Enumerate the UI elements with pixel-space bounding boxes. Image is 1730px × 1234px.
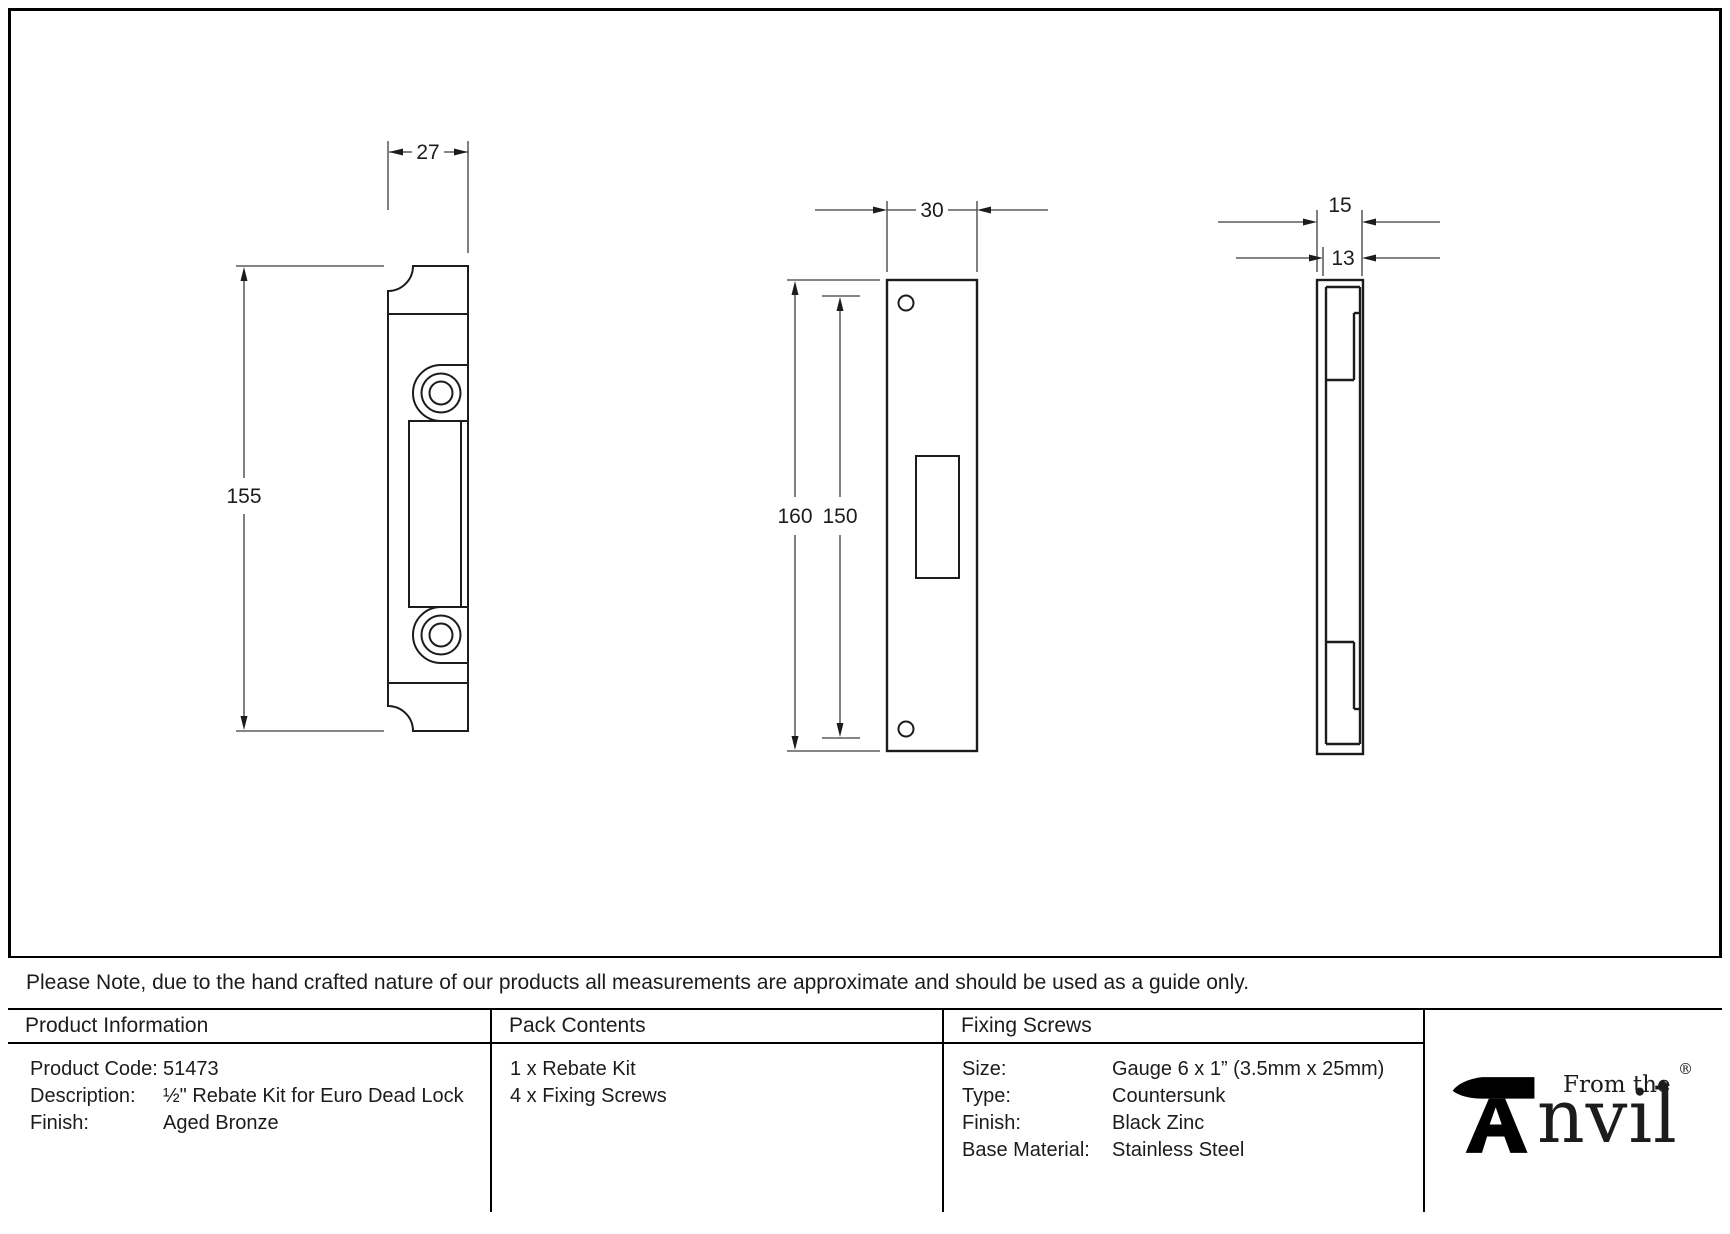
list-item: 4 x Fixing Screws bbox=[510, 1083, 942, 1110]
row-label: Type: bbox=[962, 1083, 1112, 1110]
registered-mark: ® bbox=[1678, 1060, 1693, 1078]
row-value: Aged Bronze bbox=[163, 1110, 279, 1137]
row-label: Description: bbox=[30, 1083, 163, 1110]
from-the-anvil-logo: From the ◆ nvil ® bbox=[1445, 1050, 1707, 1172]
table-row: Description: ½" Rebate Kit for Euro Dead… bbox=[30, 1083, 490, 1110]
technical-drawing: 27 155 30 bbox=[0, 0, 1730, 956]
dim-150-label: 150 bbox=[822, 505, 857, 528]
table-row: Type: Countersunk bbox=[962, 1083, 1423, 1110]
dim-155-label: 155 bbox=[226, 485, 261, 508]
row-label: Product Code: bbox=[30, 1056, 163, 1083]
face-plate-bottom-hole bbox=[899, 722, 914, 737]
dim-15-label: 15 bbox=[1328, 194, 1351, 217]
brand-cell: From the ◆ nvil ® bbox=[1425, 1008, 1722, 1212]
row-value: Gauge 6 x 1” (3.5mm x 25mm) bbox=[1112, 1056, 1384, 1083]
table-row: Base Material: Stainless Steel bbox=[962, 1137, 1423, 1164]
fixing-screws-header: Fixing Screws bbox=[944, 1008, 1425, 1044]
pack-contents-header: Pack Contents bbox=[492, 1008, 944, 1044]
list-item: 1 x Rebate Kit bbox=[510, 1056, 942, 1083]
row-label: Finish: bbox=[30, 1110, 163, 1137]
dim-27-label: 27 bbox=[416, 141, 439, 164]
side-profile-outline bbox=[388, 266, 468, 731]
face-plate-cutout bbox=[916, 456, 959, 578]
row-label: Finish: bbox=[962, 1110, 1112, 1137]
face-plate-top-hole bbox=[899, 296, 914, 311]
table-row: Finish: Aged Bronze bbox=[30, 1110, 490, 1137]
face-plate-outline bbox=[887, 280, 977, 751]
row-label: Size: bbox=[962, 1056, 1112, 1083]
dim-13-label: 13 bbox=[1331, 247, 1354, 270]
row-value: ½" Rebate Kit for Euro Dead Lock bbox=[163, 1083, 464, 1110]
product-information-header: Product Information bbox=[8, 1008, 492, 1044]
dim-30-label: 30 bbox=[920, 199, 943, 222]
anvil-icon bbox=[1451, 1076, 1537, 1154]
table-row: Size: Gauge 6 x 1” (3.5mm x 25mm) bbox=[962, 1056, 1423, 1083]
side-profile-recess bbox=[409, 421, 461, 607]
table-row: Finish: Black Zinc bbox=[962, 1110, 1423, 1137]
row-value: Stainless Steel bbox=[1112, 1137, 1244, 1164]
dim-15 bbox=[1218, 210, 1440, 276]
logo-name: nvil bbox=[1537, 1080, 1678, 1154]
row-label: Base Material: bbox=[962, 1137, 1112, 1164]
fixing-screws-cell: Size: Gauge 6 x 1” (3.5mm x 25mm) Type: … bbox=[944, 1044, 1425, 1212]
side-profile-view bbox=[388, 266, 468, 731]
spec-sheet-page: 27 155 30 bbox=[0, 0, 1730, 1234]
dim-160-label: 160 bbox=[777, 505, 812, 528]
row-value: Black Zinc bbox=[1112, 1110, 1204, 1137]
row-value: 51473 bbox=[163, 1056, 219, 1083]
row-value: Countersunk bbox=[1112, 1083, 1225, 1110]
edge-profile-outline bbox=[1317, 280, 1363, 754]
measurements-note-text: Please Note, due to the hand crafted nat… bbox=[26, 971, 1249, 995]
product-information-cell: Product Code: 51473 Description: ½" Reba… bbox=[8, 1044, 492, 1212]
face-plate-view bbox=[887, 280, 977, 751]
edge-profile-view bbox=[1317, 280, 1363, 754]
measurements-note: Please Note, due to the hand crafted nat… bbox=[8, 956, 1722, 1008]
table-row: Product Code: 51473 bbox=[30, 1056, 490, 1083]
pack-contents-cell: 1 x Rebate Kit 4 x Fixing Screws bbox=[492, 1044, 944, 1212]
